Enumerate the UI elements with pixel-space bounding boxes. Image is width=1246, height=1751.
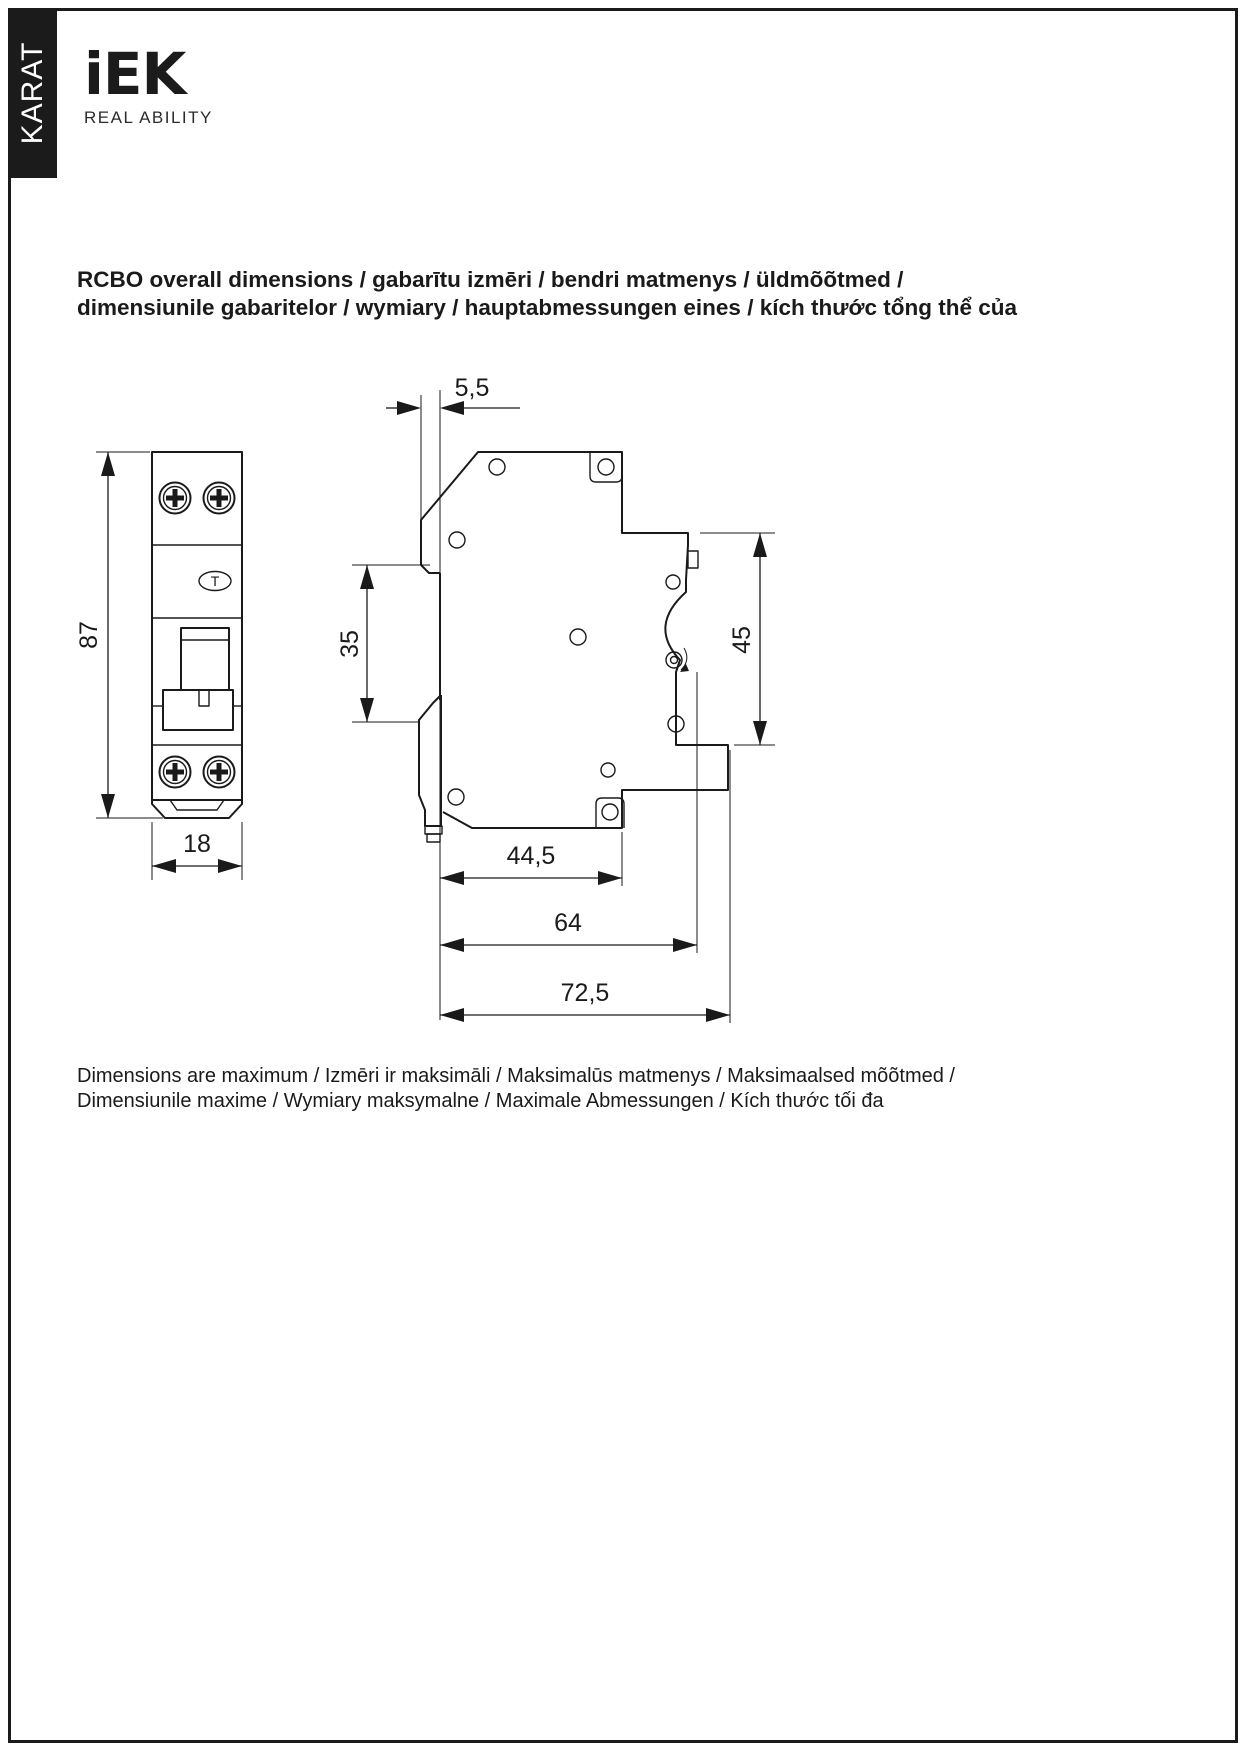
dim-45-label: 45 [728,626,756,654]
screw-terminal-bottom-right [204,757,235,788]
terminal-hole-bottom [602,804,618,820]
dim-72-5-label: 72,5 [561,979,610,1007]
dimension-45: 45 [700,533,775,745]
terminal-hole-top [598,459,614,475]
screw-terminal-top-right [204,483,235,514]
dimension-44-5: 44,5 [440,832,622,886]
dimension-5-5: 5,5 [386,374,520,520]
dim-35-label: 35 [336,630,364,658]
front-foot-notch [170,800,224,810]
dim-44-5-label: 44,5 [507,842,556,870]
dim-5-5-label: 5,5 [455,374,490,402]
dimension-18: 18 [152,822,242,880]
note-line-2: Dimensiunile maxime / Wymiary maksymalne… [77,1089,1117,1114]
dimension-64: 64 [440,672,697,953]
dim-64-label: 64 [554,909,582,937]
dim-87-label: 87 [75,621,103,649]
screw-terminal-top-left [160,483,191,514]
front-foot [152,800,242,818]
rivet-hole [601,763,615,777]
side-body-outline [421,452,728,828]
dimensions-note: Dimensions are maximum / Izmēri ir maksi… [77,1064,1117,1114]
technical-drawing: T [0,0,1246,1751]
front-strip-chamfer [421,565,440,573]
din-stop-tab [688,551,698,568]
test-button-label: T [211,573,220,589]
rivet-hole [666,575,680,589]
terminal-notch-bottom [596,798,624,828]
test-button: T [199,572,231,591]
screw-terminal-bottom-left [160,757,191,788]
rivet-hole [570,629,586,645]
terminal-notch-top [590,452,622,482]
rivet-hole [489,459,505,475]
document-page: KARAT iEK REAL ABILITY RCBO overall dime… [0,0,1246,1751]
dimension-35: 35 [336,565,430,722]
note-line-1: Dimensions are maximum / Izmēri ir maksi… [77,1064,1117,1089]
rivet-hole [448,789,464,805]
front-view: T [152,452,242,818]
rivet-hole [449,532,465,548]
toggle-lever-side [419,695,442,842]
toggle-switch [152,628,242,730]
dim-18-label: 18 [183,830,211,858]
dimension-87: 87 [75,452,163,818]
